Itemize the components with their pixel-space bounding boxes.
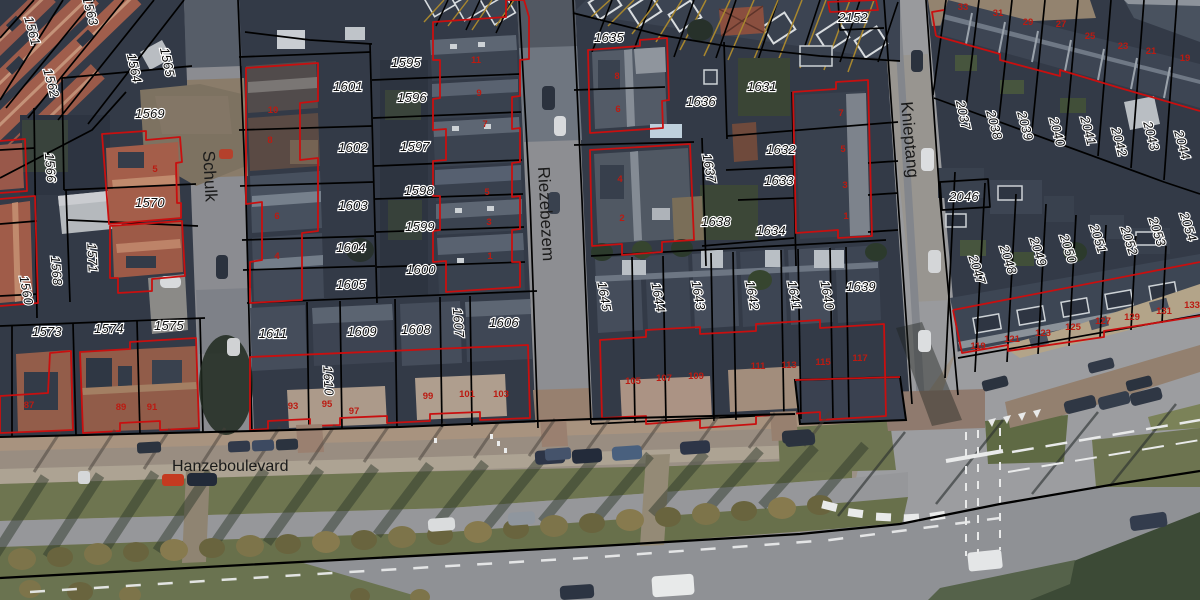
svg-text:1611: 1611 xyxy=(259,326,288,341)
svg-text:131: 131 xyxy=(1156,306,1173,317)
svg-text:23: 23 xyxy=(1118,41,1129,52)
svg-text:3: 3 xyxy=(842,180,847,191)
svg-text:1602: 1602 xyxy=(338,140,368,155)
svg-text:21: 21 xyxy=(1146,46,1157,57)
svg-text:19: 19 xyxy=(1180,53,1191,64)
svg-text:125: 125 xyxy=(1065,322,1082,333)
svg-text:1595: 1595 xyxy=(391,55,421,70)
svg-text:5: 5 xyxy=(484,187,490,198)
svg-text:29: 29 xyxy=(1023,17,1034,28)
svg-text:1600: 1600 xyxy=(406,262,436,277)
svg-text:115: 115 xyxy=(815,357,831,368)
svg-text:1570: 1570 xyxy=(135,195,165,210)
svg-text:1: 1 xyxy=(843,211,849,222)
svg-text:1610: 1610 xyxy=(320,366,337,397)
svg-text:27: 27 xyxy=(1056,19,1067,30)
svg-text:89: 89 xyxy=(116,402,127,413)
svg-text:119: 119 xyxy=(970,341,985,352)
svg-text:93: 93 xyxy=(288,401,299,412)
svg-text:1573: 1573 xyxy=(32,324,62,339)
svg-text:1636: 1636 xyxy=(686,94,716,109)
svg-text:107: 107 xyxy=(656,373,672,384)
svg-text:1571: 1571 xyxy=(84,243,101,273)
svg-text:101: 101 xyxy=(459,389,476,400)
svg-text:121: 121 xyxy=(1004,334,1021,345)
svg-text:1569: 1569 xyxy=(135,106,165,121)
svg-text:1639: 1639 xyxy=(846,279,876,294)
svg-text:105: 105 xyxy=(625,376,642,387)
svg-text:7: 7 xyxy=(482,119,487,130)
svg-text:97: 97 xyxy=(349,406,360,417)
svg-text:31: 31 xyxy=(993,8,1004,19)
svg-text:1598: 1598 xyxy=(404,183,434,198)
svg-text:1631: 1631 xyxy=(747,79,777,94)
svg-text:8: 8 xyxy=(614,71,619,82)
svg-text:1601: 1601 xyxy=(333,79,363,94)
svg-text:127: 127 xyxy=(1095,316,1111,327)
svg-text:3: 3 xyxy=(486,217,491,228)
svg-text:6: 6 xyxy=(615,104,620,115)
svg-text:1635: 1635 xyxy=(594,30,624,45)
svg-text:133: 133 xyxy=(1184,300,1200,311)
svg-text:117: 117 xyxy=(852,353,867,364)
svg-text:1575: 1575 xyxy=(154,318,184,333)
svg-text:5: 5 xyxy=(152,164,158,175)
svg-text:109: 109 xyxy=(688,371,704,382)
svg-text:129: 129 xyxy=(1124,312,1140,323)
svg-text:99: 99 xyxy=(423,391,434,402)
svg-text:103: 103 xyxy=(493,389,509,400)
svg-text:1597: 1597 xyxy=(400,139,430,154)
svg-text:1574: 1574 xyxy=(94,321,124,336)
svg-text:1596: 1596 xyxy=(397,90,427,105)
svg-text:8: 8 xyxy=(267,135,272,146)
svg-text:7: 7 xyxy=(838,108,843,119)
svg-text:2152: 2152 xyxy=(837,10,868,25)
svg-text:5: 5 xyxy=(840,144,846,155)
svg-text:6: 6 xyxy=(274,211,279,222)
svg-text:1605: 1605 xyxy=(336,277,366,292)
svg-text:10: 10 xyxy=(268,105,279,116)
svg-text:4: 4 xyxy=(274,251,280,262)
svg-text:1608: 1608 xyxy=(401,322,431,337)
svg-text:1604: 1604 xyxy=(336,240,366,255)
svg-text:2: 2 xyxy=(619,213,624,224)
svg-text:123: 123 xyxy=(1035,328,1051,339)
svg-text:91: 91 xyxy=(147,402,158,413)
svg-text:113: 113 xyxy=(781,360,796,371)
svg-text:87: 87 xyxy=(24,400,35,411)
svg-text:9: 9 xyxy=(476,88,481,99)
svg-text:Schulk: Schulk xyxy=(199,150,221,202)
svg-text:1606: 1606 xyxy=(489,315,519,330)
svg-text:1638: 1638 xyxy=(701,214,731,229)
svg-text:1603: 1603 xyxy=(338,198,368,213)
svg-text:2046: 2046 xyxy=(948,189,979,204)
svg-text:1566: 1566 xyxy=(42,152,60,183)
svg-text:33: 33 xyxy=(958,2,969,13)
svg-text:1632: 1632 xyxy=(766,142,796,157)
svg-text:Hanzeboulevard: Hanzeboulevard xyxy=(172,458,289,475)
svg-text:1: 1 xyxy=(487,251,493,262)
svg-text:25: 25 xyxy=(1085,31,1096,42)
svg-text:95: 95 xyxy=(322,399,333,410)
svg-text:1634: 1634 xyxy=(756,223,786,238)
svg-text:111: 111 xyxy=(751,361,767,372)
svg-text:11: 11 xyxy=(471,55,482,66)
svg-text:4: 4 xyxy=(617,174,623,185)
svg-text:1568: 1568 xyxy=(48,255,66,286)
svg-text:1609: 1609 xyxy=(347,324,377,339)
svg-text:1607: 1607 xyxy=(450,307,468,338)
svg-text:1599: 1599 xyxy=(405,219,435,234)
svg-text:1633: 1633 xyxy=(764,173,794,188)
